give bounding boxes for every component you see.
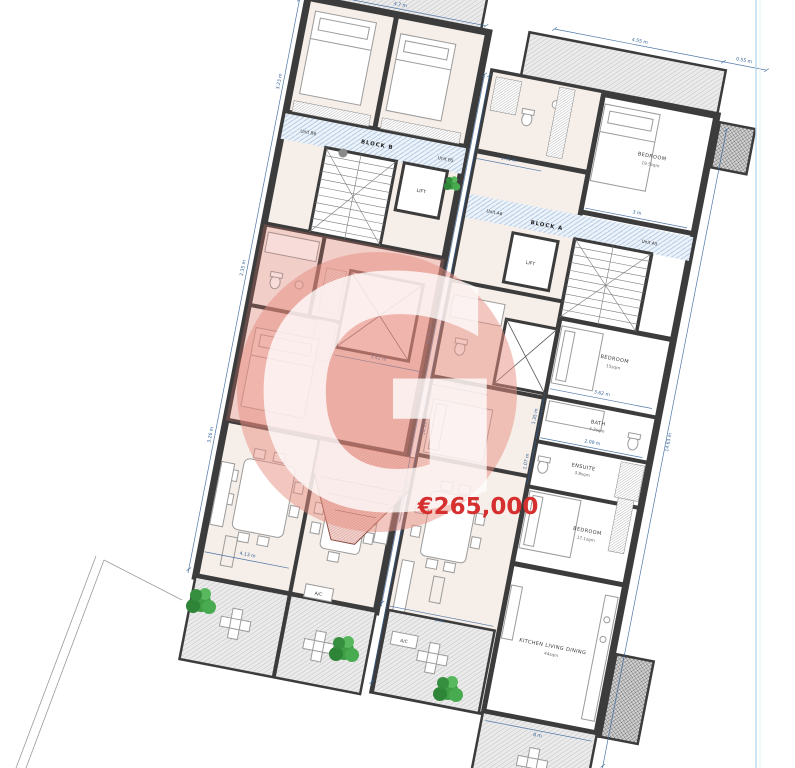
site-boundary-lines	[16, 556, 182, 768]
column-dot	[339, 149, 348, 158]
watermark-logo: G	[237, 212, 517, 584]
dim-label: 0.55 m	[735, 56, 753, 65]
watermark-letter: G	[248, 212, 511, 584]
price-label: €265,000	[417, 494, 539, 520]
floorplan-canvas: A/C Unit B6 BLOCK B Unit B5 LIFT	[0, 0, 795, 768]
floorplan-svg: A/C Unit B6 BLOCK B Unit B5 LIFT	[0, 0, 795, 768]
